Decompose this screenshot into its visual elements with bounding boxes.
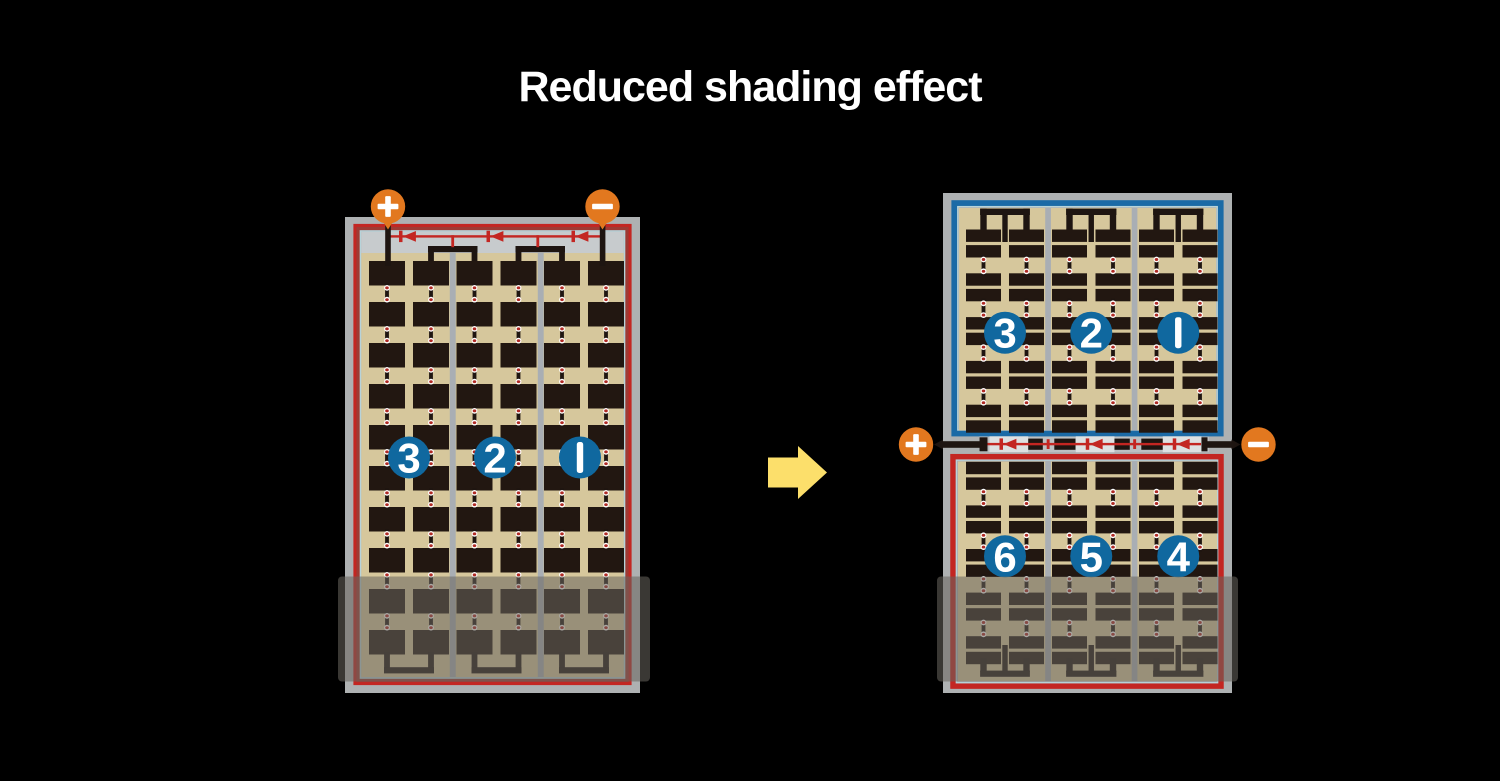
svg-text:2: 2 [1080, 310, 1103, 357]
svg-text:3: 3 [993, 310, 1016, 357]
svg-text:3: 3 [397, 435, 420, 482]
svg-text:4: 4 [1167, 533, 1191, 580]
svg-text:6: 6 [993, 533, 1016, 580]
svg-text:Reduced shading effect: Reduced shading effect [518, 63, 982, 111]
svg-text:5: 5 [1080, 533, 1103, 580]
svg-text:2: 2 [483, 435, 506, 482]
